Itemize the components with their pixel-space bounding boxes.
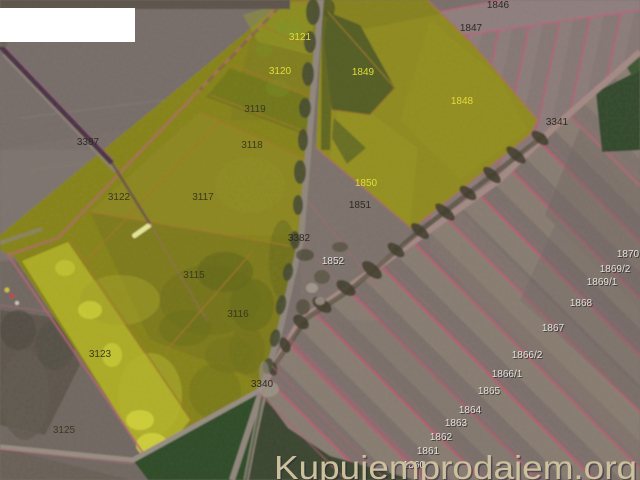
svg-text:3340: 3340 — [251, 379, 274, 390]
svg-text:3122: 3122 — [108, 192, 131, 203]
svg-text:3116: 3116 — [227, 309, 249, 320]
svg-text:Kupujemprodajem.org: Kupujemprodajem.org — [274, 449, 637, 480]
svg-text:1848: 1848 — [451, 96, 474, 107]
svg-text:1870: 1870 — [617, 249, 640, 260]
svg-text:3125: 3125 — [53, 425, 76, 436]
svg-text:1852: 1852 — [322, 256, 345, 267]
svg-text:1869/2: 1869/2 — [600, 264, 631, 275]
svg-text:3118: 3118 — [241, 140, 263, 151]
svg-text:3123: 3123 — [89, 349, 112, 360]
svg-text:3341: 3341 — [546, 117, 569, 128]
svg-text:3120: 3120 — [269, 66, 292, 77]
svg-text:1866/2: 1866/2 — [512, 350, 543, 361]
svg-text:1862: 1862 — [430, 432, 453, 443]
svg-text:1847: 1847 — [460, 23, 483, 34]
svg-text:3387: 3387 — [77, 137, 100, 148]
svg-text:3117: 3117 — [192, 192, 214, 203]
svg-text:1868: 1868 — [570, 298, 593, 309]
svg-text:1850: 1850 — [355, 178, 378, 189]
svg-text:1867: 1867 — [542, 323, 565, 334]
svg-text:1865: 1865 — [478, 386, 501, 397]
svg-text:1864: 1864 — [459, 405, 482, 416]
svg-text:1849: 1849 — [352, 67, 375, 78]
svg-text:3115: 3115 — [183, 270, 205, 281]
svg-text:1869/1: 1869/1 — [587, 277, 618, 288]
svg-text:1851: 1851 — [349, 200, 372, 211]
svg-text:3119: 3119 — [244, 104, 266, 115]
svg-text:1866/1: 1866/1 — [492, 369, 523, 380]
svg-text:3382: 3382 — [288, 233, 311, 244]
svg-text:1846: 1846 — [487, 0, 510, 11]
svg-text:1863: 1863 — [445, 418, 468, 429]
svg-text:3121: 3121 — [289, 32, 312, 43]
